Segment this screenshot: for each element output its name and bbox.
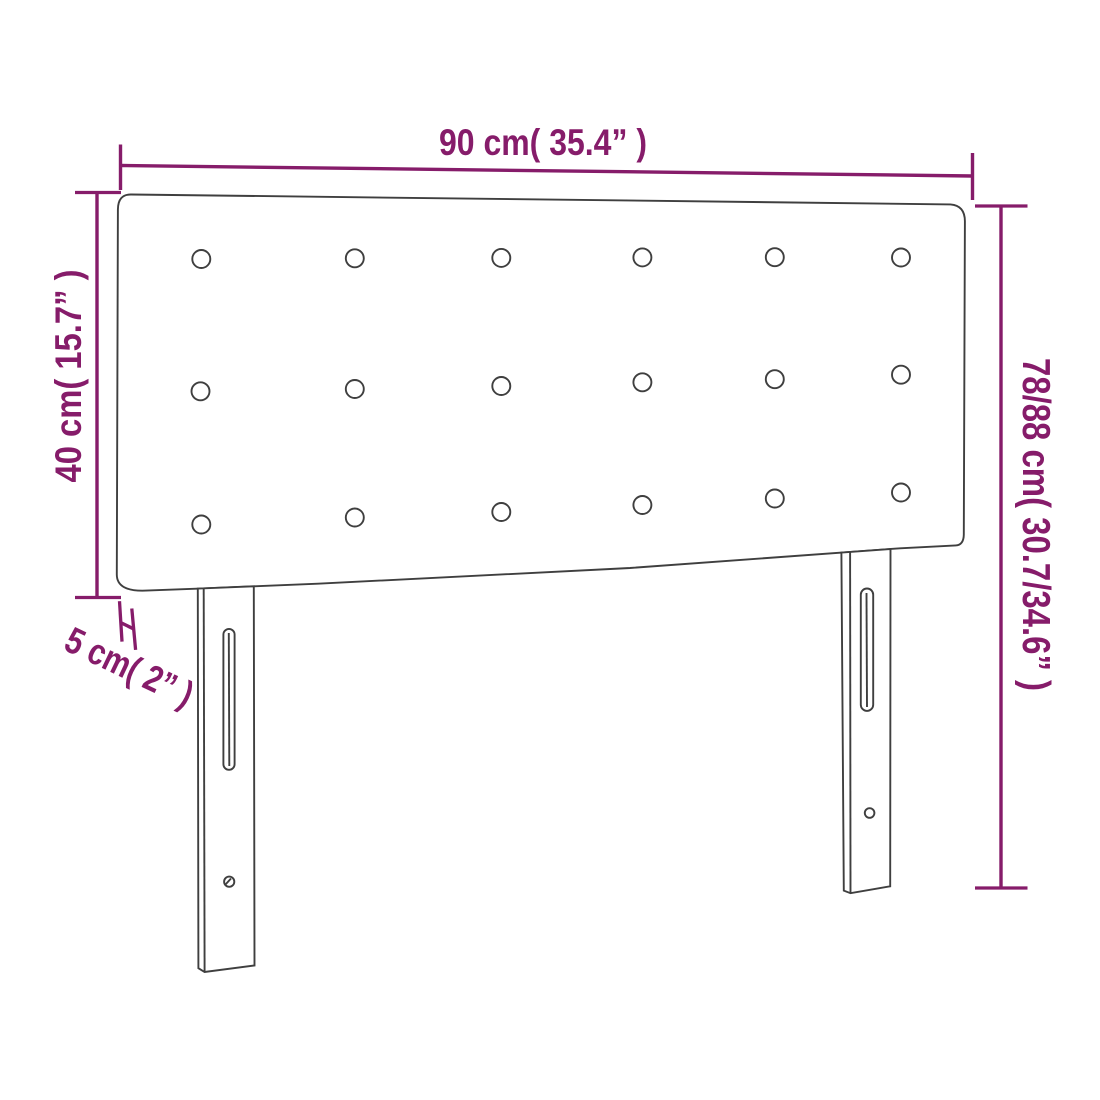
svg-text:40 cm( 15.7” ): 40 cm( 15.7” ) xyxy=(48,270,89,483)
svg-text:90 cm( 35.4” ): 90 cm( 35.4” ) xyxy=(439,122,647,163)
svg-text:78/88 cm( 30.7/34.6” ): 78/88 cm( 30.7/34.6” ) xyxy=(1014,358,1057,691)
